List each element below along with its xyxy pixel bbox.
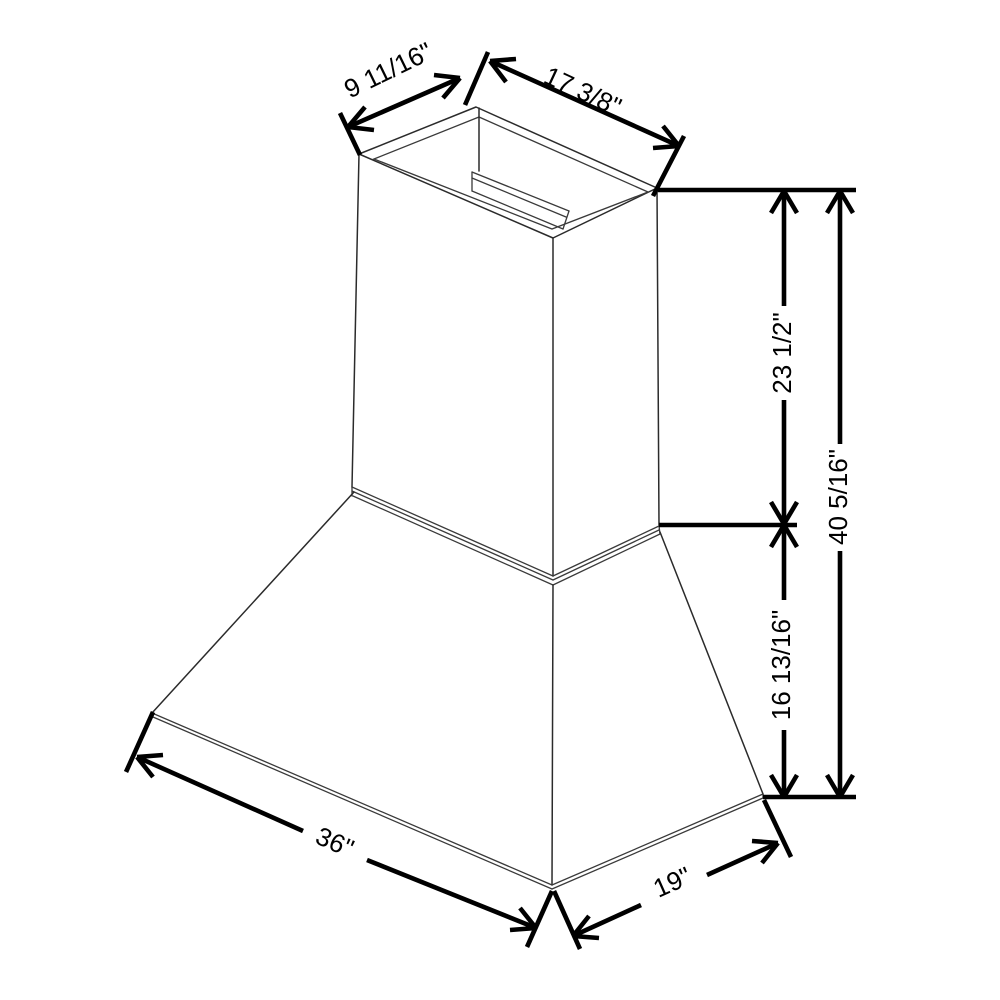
canopy-body: [152, 492, 763, 885]
dim-label-top-width: 17 3/8": [540, 60, 627, 122]
trim-band: [352, 487, 660, 585]
chimney-top-inner-flange: [472, 172, 569, 229]
dim-label-bottom-width: 36": [311, 821, 358, 864]
range-hood-dimension-diagram: 9 11/16" 17 3/8" 23 1/2" 40 5/16" 16 13/…: [0, 0, 1000, 1000]
dim-label-bottom-depth: 19": [649, 861, 696, 904]
chimney-top-rim: [359, 107, 657, 238]
diagram-canvas: 9 11/16" 17 3/8" 23 1/2" 40 5/16" 16 13/…: [0, 0, 1000, 1000]
dim-label-overall-height: 40 5/16": [823, 449, 853, 545]
canopy-bottom-rim: [152, 713, 763, 889]
dim-label-chimney-height: 23 1/2": [767, 312, 797, 394]
dim-label-canopy-height: 16 13/16": [766, 610, 796, 720]
